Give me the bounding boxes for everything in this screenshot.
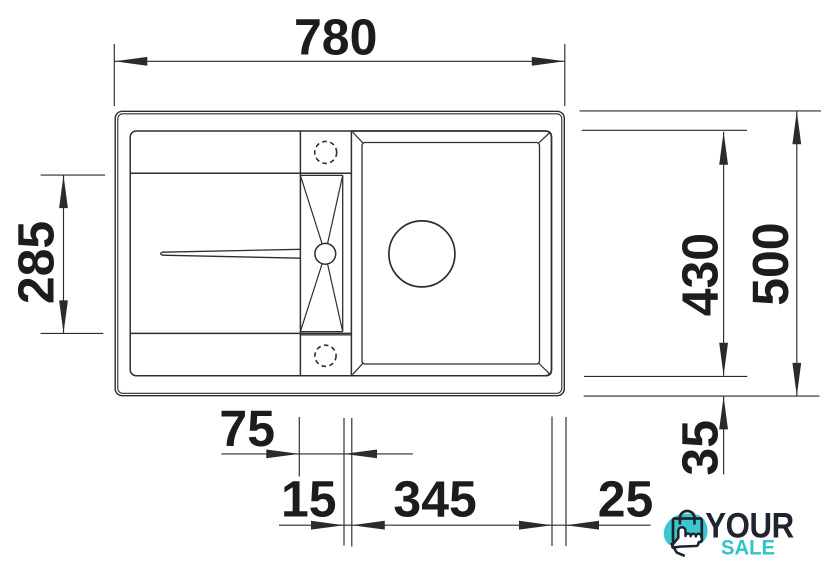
svg-text:35: 35 (671, 420, 729, 476)
svg-text:430: 430 (671, 233, 729, 316)
svg-text:75: 75 (219, 400, 275, 458)
svg-text:SALE: SALE (721, 536, 775, 560)
svg-text:345: 345 (393, 470, 476, 528)
svg-text:25: 25 (598, 470, 654, 528)
svg-text:285: 285 (7, 221, 65, 304)
svg-text:15: 15 (281, 470, 337, 528)
svg-text:500: 500 (742, 222, 800, 305)
svg-text:780: 780 (294, 8, 377, 66)
